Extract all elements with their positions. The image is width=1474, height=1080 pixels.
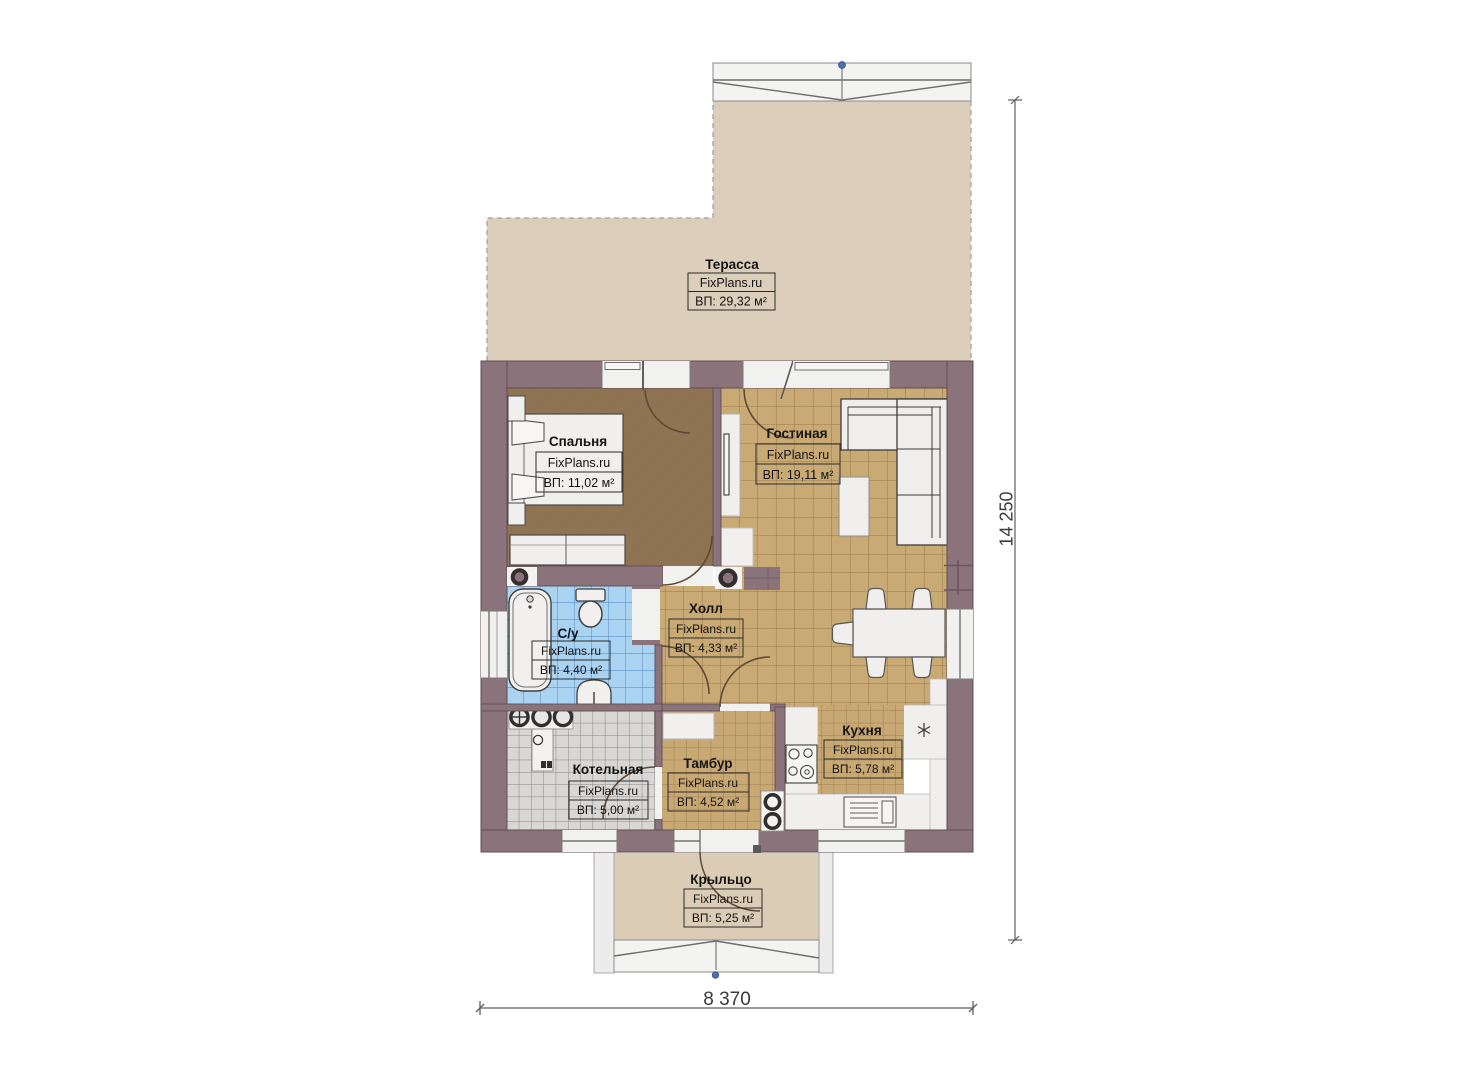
svg-text:ВП: 29,32 м²: ВП: 29,32 м² bbox=[695, 295, 767, 309]
svg-text:ВП: 4,52 м²: ВП: 4,52 м² bbox=[677, 795, 739, 809]
svg-text:ВП: 11,02 м²: ВП: 11,02 м² bbox=[544, 476, 615, 490]
svg-text:FixPlans.ru: FixPlans.ru bbox=[541, 644, 601, 658]
svg-text:FixPlans.ru: FixPlans.ru bbox=[578, 784, 638, 798]
svg-text:FixPlans.ru: FixPlans.ru bbox=[676, 622, 736, 636]
svg-text:С/у: С/у bbox=[557, 626, 579, 641]
svg-text:ВП: 4,33 м²: ВП: 4,33 м² bbox=[675, 641, 737, 655]
svg-text:Холл: Холл bbox=[689, 601, 723, 616]
svg-text:ВП: 4,40 м²: ВП: 4,40 м² bbox=[540, 663, 602, 677]
svg-text:14 250: 14 250 bbox=[997, 491, 1017, 546]
svg-text:ВП: 19,11 м²: ВП: 19,11 м² bbox=[763, 468, 834, 482]
svg-text:Терасса: Терасса bbox=[705, 257, 759, 272]
svg-text:ВП: 5,00 м²: ВП: 5,00 м² bbox=[577, 803, 639, 817]
svg-text:FixPlans.ru: FixPlans.ru bbox=[548, 456, 611, 470]
svg-text:Крыльцо: Крыльцо bbox=[690, 872, 751, 887]
svg-text:ВП: 5,25 м²: ВП: 5,25 м² bbox=[692, 911, 754, 925]
svg-text:Спальня: Спальня bbox=[549, 434, 607, 449]
svg-text:FixPlans.ru: FixPlans.ru bbox=[693, 892, 753, 906]
svg-text:FixPlans.ru: FixPlans.ru bbox=[833, 743, 893, 757]
svg-text:FixPlans.ru: FixPlans.ru bbox=[700, 276, 763, 290]
svg-text:8 370: 8 370 bbox=[703, 989, 751, 1010]
svg-text:ВП: 5,78 м²: ВП: 5,78 м² bbox=[832, 762, 894, 776]
svg-text:Гостиная: Гостиная bbox=[766, 426, 827, 441]
svg-text:FixPlans.ru: FixPlans.ru bbox=[767, 448, 830, 462]
svg-text:Кухня: Кухня bbox=[842, 723, 881, 738]
svg-text:FixPlans.ru: FixPlans.ru bbox=[678, 776, 738, 790]
svg-text:Котельная: Котельная bbox=[573, 762, 644, 777]
svg-text:Тамбур: Тамбур bbox=[684, 756, 733, 771]
